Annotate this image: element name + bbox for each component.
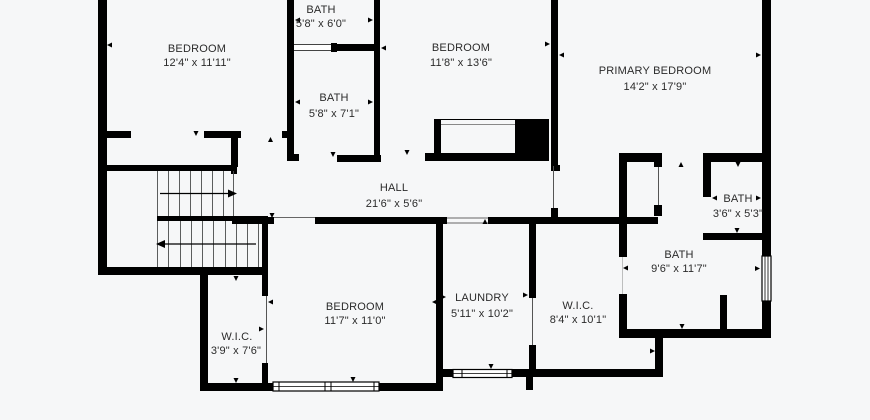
svg-text:9'6" x 11'7": 9'6" x 11'7" bbox=[651, 263, 707, 275]
svg-text:11'8" x 13'6": 11'8" x 13'6" bbox=[430, 57, 492, 69]
svg-text:3'9" x 7'6": 3'9" x 7'6" bbox=[211, 345, 261, 357]
svg-text:21'6" x 5'6": 21'6" x 5'6" bbox=[366, 198, 423, 210]
svg-text:HALL: HALL bbox=[380, 182, 408, 194]
svg-text:5'8" x 6'0": 5'8" x 6'0" bbox=[296, 18, 346, 30]
svg-text:3'6" x 5'3": 3'6" x 5'3" bbox=[713, 208, 763, 220]
svg-text:LAUNDRY: LAUNDRY bbox=[455, 292, 509, 304]
svg-text:5'8" x 7'1": 5'8" x 7'1" bbox=[309, 108, 359, 120]
svg-text:BATH: BATH bbox=[664, 249, 693, 261]
svg-text:12'4" x 11'11": 12'4" x 11'11" bbox=[163, 57, 231, 69]
svg-text:11'7" x 11'0": 11'7" x 11'0" bbox=[324, 315, 385, 327]
svg-text:5'11" x 10'2": 5'11" x 10'2" bbox=[451, 308, 513, 320]
svg-text:14'2" x 17'9": 14'2" x 17'9" bbox=[624, 81, 687, 93]
svg-text:8'4" x 10'1": 8'4" x 10'1" bbox=[550, 314, 607, 326]
svg-text:W.I.C.: W.I.C. bbox=[221, 331, 252, 343]
svg-text:BATH: BATH bbox=[723, 193, 752, 205]
svg-text:BEDROOM: BEDROOM bbox=[326, 301, 384, 313]
svg-text:BEDROOM: BEDROOM bbox=[432, 42, 490, 54]
svg-text:PRIMARY BEDROOM: PRIMARY BEDROOM bbox=[599, 65, 712, 77]
svg-text:W.I.C.: W.I.C. bbox=[562, 300, 593, 312]
svg-text:BATH: BATH bbox=[306, 4, 335, 16]
svg-text:BEDROOM: BEDROOM bbox=[168, 43, 226, 55]
svg-text:BATH: BATH bbox=[319, 92, 348, 104]
